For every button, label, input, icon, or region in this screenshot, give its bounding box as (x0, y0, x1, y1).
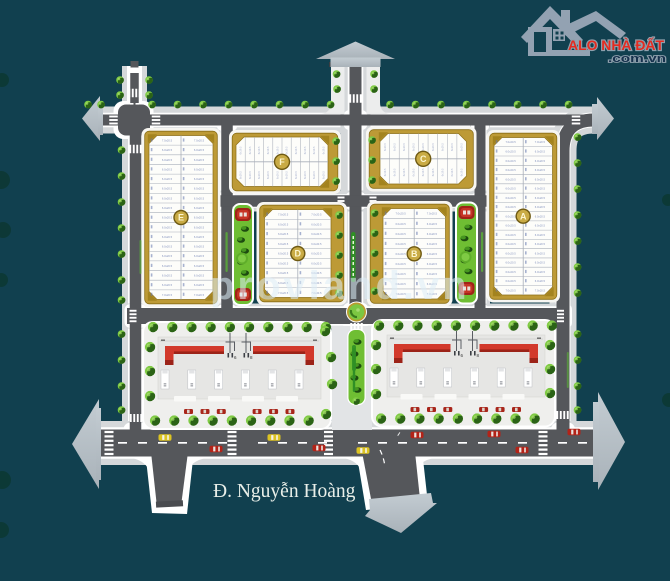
svg-text:6x19.5: 6x19.5 (402, 143, 406, 151)
svg-text:6.0x20.5: 6.0x20.5 (194, 216, 205, 220)
svg-text:6x19.5: 6x19.5 (239, 171, 243, 179)
svg-text:6x19.5: 6x19.5 (383, 143, 387, 151)
svg-text:6.0x20.5: 6.0x20.5 (162, 196, 173, 200)
svg-text:7.0x20.5: 7.0x20.5 (311, 213, 322, 217)
svg-text:6.0x20.5: 6.0x20.5 (278, 252, 289, 256)
svg-text:6.0x20.5: 6.0x20.5 (505, 224, 516, 228)
svg-text:6x19.5: 6x19.5 (312, 146, 316, 154)
svg-text:6.0x20.5: 6.0x20.5 (162, 274, 173, 278)
svg-text:6.0x20.5: 6.0x20.5 (162, 206, 173, 210)
svg-text:6.0x20.5: 6.0x20.5 (162, 254, 173, 258)
svg-text:6x19.5: 6x19.5 (275, 146, 279, 154)
svg-text:6x19.5: 6x19.5 (248, 146, 252, 154)
svg-text:6.0x20.5: 6.0x20.5 (311, 252, 322, 256)
svg-text:6x19.5: 6x19.5 (294, 146, 298, 154)
svg-text:6.0x20.5: 6.0x20.5 (535, 224, 546, 228)
svg-text:6.0x20.5: 6.0x20.5 (505, 279, 516, 283)
svg-text:6x19.5: 6x19.5 (248, 171, 252, 179)
svg-text:6x19.5: 6x19.5 (285, 146, 289, 154)
svg-text:6x19.5: 6x19.5 (460, 168, 464, 176)
svg-text:6.0x20.5: 6.0x20.5 (427, 222, 438, 226)
svg-text:6.0x20.5: 6.0x20.5 (427, 252, 438, 256)
svg-text:6x19.5: 6x19.5 (412, 168, 416, 176)
svg-text:6.0x20.5: 6.0x20.5 (535, 187, 546, 191)
svg-text:6x19.5: 6x19.5 (275, 171, 279, 179)
svg-text:6.0x20.5: 6.0x20.5 (535, 261, 546, 265)
svg-text:6.0x20.5: 6.0x20.5 (311, 242, 322, 246)
svg-text:6.0x20.5: 6.0x20.5 (505, 205, 516, 209)
svg-text:6.0x20.5: 6.0x20.5 (395, 252, 406, 256)
svg-text:7.0x20.5: 7.0x20.5 (505, 140, 516, 144)
svg-text:6.0x20.5: 6.0x20.5 (311, 232, 322, 236)
svg-text:7.0x20.5: 7.0x20.5 (194, 293, 205, 297)
svg-text:A: A (520, 211, 527, 221)
svg-text:6.0x20.5: 6.0x20.5 (535, 159, 546, 163)
svg-text:6x19.5: 6x19.5 (431, 168, 435, 176)
svg-text:6x19.5: 6x19.5 (383, 168, 387, 176)
svg-text:6.0x20.5: 6.0x20.5 (395, 242, 406, 246)
svg-text:6.0x20.5: 6.0x20.5 (162, 283, 173, 287)
svg-text:6x19.5: 6x19.5 (392, 143, 396, 151)
svg-text:6.0x20.5: 6.0x20.5 (505, 168, 516, 172)
svg-text:6.0x20.5: 6.0x20.5 (162, 264, 173, 268)
svg-text:.com.vn: .com.vn (608, 53, 666, 65)
svg-text:provland.vn: provland.vn (210, 264, 470, 308)
svg-text:6.0x20.5: 6.0x20.5 (162, 245, 173, 249)
svg-text:6.0x20.5: 6.0x20.5 (194, 167, 205, 171)
svg-text:6.0x20.5: 6.0x20.5 (535, 168, 546, 172)
svg-text:6x19.5: 6x19.5 (441, 168, 445, 176)
svg-text:6.0x20.5: 6.0x20.5 (535, 177, 546, 181)
svg-text:7.0x20.5: 7.0x20.5 (194, 139, 205, 143)
svg-text:6x19.5: 6x19.5 (450, 143, 454, 151)
svg-text:6.0x20.5: 6.0x20.5 (194, 283, 205, 287)
svg-text:6.0x20.5: 6.0x20.5 (162, 158, 173, 162)
svg-text:6.0x20.5: 6.0x20.5 (278, 242, 289, 246)
svg-text:6.0x20.5: 6.0x20.5 (162, 187, 173, 191)
svg-text:7.0x20.5: 7.0x20.5 (162, 139, 173, 143)
svg-text:6.0x20.5: 6.0x20.5 (505, 150, 516, 154)
svg-text:6.0x20.5: 6.0x20.5 (162, 177, 173, 181)
svg-text:E: E (178, 213, 184, 223)
svg-text:6.0x20.5: 6.0x20.5 (194, 196, 205, 200)
svg-text:6x19.5: 6x19.5 (294, 171, 298, 179)
svg-text:D: D (295, 249, 302, 259)
svg-text:6.0x20.5: 6.0x20.5 (427, 242, 438, 246)
svg-text:6x19.5: 6x19.5 (312, 171, 316, 179)
svg-text:6.0x20.5: 6.0x20.5 (505, 214, 516, 218)
svg-text:6.0x20.5: 6.0x20.5 (535, 233, 546, 237)
svg-text:6.0x20.5: 6.0x20.5 (505, 159, 516, 163)
svg-text:F: F (279, 157, 285, 167)
svg-text:6.0x20.5: 6.0x20.5 (427, 232, 438, 236)
svg-text:6x19.5: 6x19.5 (441, 143, 445, 151)
svg-text:6.0x20.5: 6.0x20.5 (505, 233, 516, 237)
svg-text:6.0x20.5: 6.0x20.5 (535, 196, 546, 200)
svg-text:6.0x20.5: 6.0x20.5 (395, 222, 406, 226)
svg-text:6.0x20.5: 6.0x20.5 (505, 242, 516, 246)
svg-text:6.0x20.5: 6.0x20.5 (311, 222, 322, 226)
svg-text:6.0x20.5: 6.0x20.5 (162, 225, 173, 229)
svg-text:B: B (411, 249, 418, 259)
svg-text:6x19.5: 6x19.5 (421, 168, 425, 176)
svg-text:6.0x20.5: 6.0x20.5 (535, 242, 546, 246)
svg-text:6.0x20.5: 6.0x20.5 (505, 251, 516, 255)
svg-text:6x19.5: 6x19.5 (257, 171, 261, 179)
svg-text:6.0x20.5: 6.0x20.5 (194, 206, 205, 210)
svg-text:6x19.5: 6x19.5 (392, 168, 396, 176)
svg-text:6x19.5: 6x19.5 (460, 143, 464, 151)
svg-text:7.0x20.5: 7.0x20.5 (505, 289, 516, 293)
svg-text:6.0x20.5: 6.0x20.5 (535, 214, 546, 218)
svg-text:6.0x20.5: 6.0x20.5 (162, 216, 173, 220)
svg-text:C: C (420, 154, 427, 164)
svg-text:6x19.5: 6x19.5 (303, 171, 307, 179)
svg-text:6.0x20.5: 6.0x20.5 (505, 196, 516, 200)
svg-text:6.0x20.5: 6.0x20.5 (194, 158, 205, 162)
svg-text:6.0x20.5: 6.0x20.5 (194, 245, 205, 249)
svg-text:6x19.5: 6x19.5 (321, 146, 325, 154)
svg-text:6x19.5: 6x19.5 (239, 146, 243, 154)
svg-text:6.0x20.5: 6.0x20.5 (162, 235, 173, 239)
svg-text:6x19.5: 6x19.5 (421, 143, 425, 151)
svg-text:6.0x20.5: 6.0x20.5 (162, 148, 173, 152)
svg-text:6.0x20.5: 6.0x20.5 (535, 270, 546, 274)
svg-text:6.0x20.5: 6.0x20.5 (535, 150, 546, 154)
svg-text:6.0x20.5: 6.0x20.5 (278, 232, 289, 236)
svg-text:6.0x20.5: 6.0x20.5 (505, 177, 516, 181)
svg-text:6.0x20.5: 6.0x20.5 (395, 232, 406, 236)
svg-text:6.0x20.5: 6.0x20.5 (194, 148, 205, 152)
svg-text:6x19.5: 6x19.5 (266, 171, 270, 179)
svg-text:Đ. Nguyễn Hoàng: Đ. Nguyễn Hoàng (213, 481, 356, 502)
svg-text:6x19.5: 6x19.5 (321, 171, 325, 179)
svg-text:7.0x20.5: 7.0x20.5 (395, 212, 406, 216)
svg-text:6.0x20.5: 6.0x20.5 (194, 264, 205, 268)
svg-text:6.0x20.5: 6.0x20.5 (505, 187, 516, 191)
svg-text:6x19.5: 6x19.5 (412, 143, 416, 151)
svg-text:7.0x20.5: 7.0x20.5 (278, 213, 289, 217)
svg-text:ALO NHÀ ĐẤT: ALO NHÀ ĐẤT (568, 38, 665, 53)
svg-text:6.0x20.5: 6.0x20.5 (194, 254, 205, 258)
svg-text:6.0x20.5: 6.0x20.5 (162, 167, 173, 171)
svg-text:6.0x20.5: 6.0x20.5 (535, 251, 546, 255)
svg-text:6.0x20.5: 6.0x20.5 (194, 225, 205, 229)
svg-text:6.0x20.5: 6.0x20.5 (535, 205, 546, 209)
svg-text:7.0x20.5: 7.0x20.5 (162, 293, 173, 297)
svg-text:7.0x20.5: 7.0x20.5 (535, 289, 546, 293)
svg-text:6.0x20.5: 6.0x20.5 (194, 177, 205, 181)
svg-text:6x19.5: 6x19.5 (450, 168, 454, 176)
svg-text:6x19.5: 6x19.5 (257, 146, 261, 154)
svg-text:6.0x20.5: 6.0x20.5 (535, 279, 546, 283)
svg-text:6.0x20.5: 6.0x20.5 (194, 235, 205, 239)
svg-text:6x19.5: 6x19.5 (266, 146, 270, 154)
svg-text:7.0x20.5: 7.0x20.5 (427, 212, 438, 216)
svg-text:6x19.5: 6x19.5 (303, 146, 307, 154)
svg-text:6.0x20.5: 6.0x20.5 (194, 274, 205, 278)
svg-text:6x19.5: 6x19.5 (402, 168, 406, 176)
svg-text:6.0x20.5: 6.0x20.5 (194, 187, 205, 191)
svg-text:6x19.5: 6x19.5 (431, 143, 435, 151)
svg-text:6.0x20.5: 6.0x20.5 (505, 270, 516, 274)
svg-text:6.0x20.5: 6.0x20.5 (505, 261, 516, 265)
svg-text:6x19.5: 6x19.5 (285, 171, 289, 179)
svg-text:7.0x20.5: 7.0x20.5 (535, 140, 546, 144)
svg-text:6.0x20.5: 6.0x20.5 (278, 222, 289, 226)
